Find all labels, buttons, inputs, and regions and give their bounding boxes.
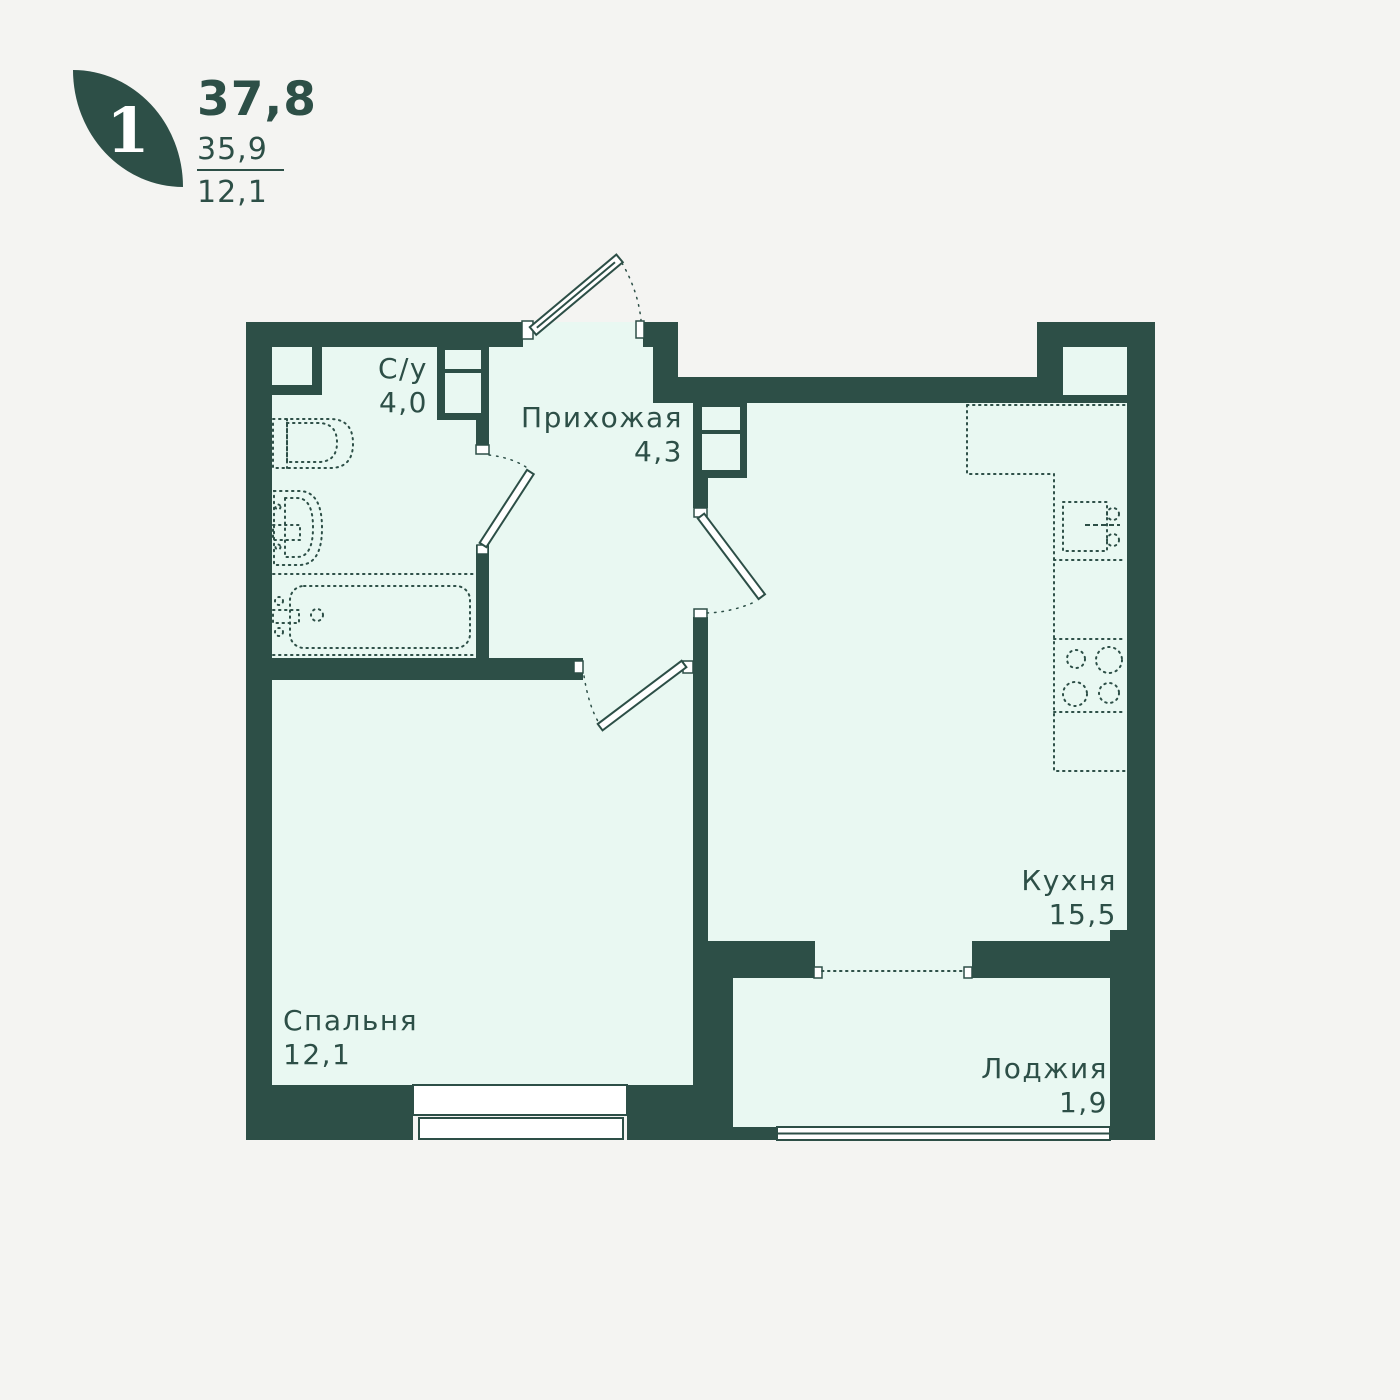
room-label-loggia: Лоджия 1,9: [858, 1052, 1108, 1120]
room-label-kitchen: Кухня 15,5: [867, 864, 1117, 932]
room-label-bathroom: С/у 4,0: [248, 352, 428, 420]
bedroom-window: [413, 1085, 627, 1139]
room-area: 4,0: [248, 386, 428, 420]
room-name: С/у: [378, 352, 428, 385]
room-label-bedroom: Спальня 12,1: [283, 1004, 533, 1072]
room-area: 4,3: [433, 435, 683, 469]
room-name: Прихожая: [521, 401, 683, 434]
room-area: 1,9: [858, 1086, 1108, 1120]
floorplan-drawing: [0, 0, 1400, 1400]
floorplan-page: 1 37,8 35,9 12,1: [0, 0, 1400, 1400]
loggia-glazing: [777, 1127, 1110, 1140]
room-area: 12,1: [283, 1038, 533, 1072]
room-name: Кухня: [1021, 864, 1117, 897]
room-label-hallway: Прихожая 4,3: [433, 401, 683, 469]
room-area: 15,5: [867, 898, 1117, 932]
room-name: Лоджия: [981, 1052, 1108, 1085]
room-name: Спальня: [283, 1004, 418, 1037]
